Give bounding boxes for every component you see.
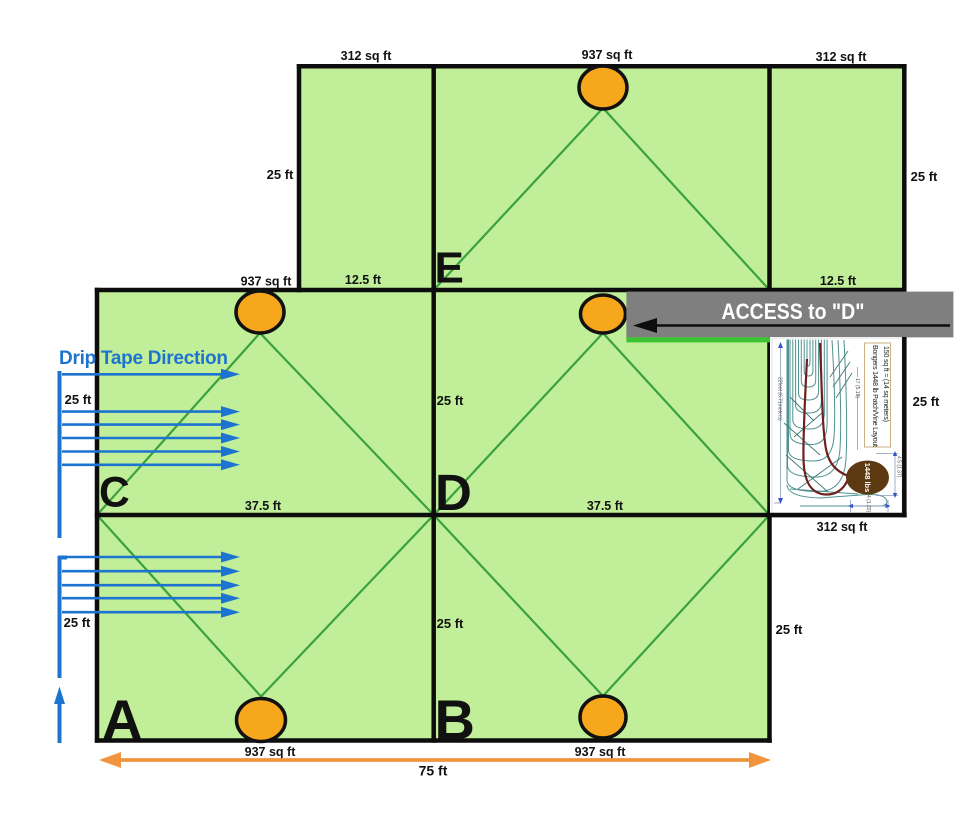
- svg-text:25 ft: 25 ft: [267, 167, 294, 182]
- svg-text:150 sq ft = (14 sq meters): 150 sq ft = (14 sq meters): [882, 346, 889, 422]
- svg-text:937 sq ft: 937 sq ft: [241, 275, 293, 289]
- svg-text:25 ft: 25 ft: [64, 615, 91, 630]
- svg-text:25 ft: 25 ft: [65, 392, 92, 407]
- svg-text:A: A: [102, 688, 142, 751]
- svg-text:1448 lbs: 1448 lbs: [863, 463, 872, 493]
- svg-text:Drip Tape Direction: Drip Tape Direction: [59, 348, 228, 369]
- svg-text:C: C: [99, 470, 130, 517]
- svg-text:312 sq ft: 312 sq ft: [341, 49, 393, 63]
- svg-text:25 ft: 25 ft: [913, 394, 940, 409]
- svg-text:22feet (6.71meters): 22feet (6.71meters): [777, 377, 783, 421]
- svg-text:12.5 ft: 12.5 ft: [345, 273, 382, 287]
- svg-text:937 sq ft: 937 sq ft: [575, 745, 627, 759]
- svg-text:937 sq ft: 937 sq ft: [582, 48, 634, 62]
- svg-text:312 sq ft: 312 sq ft: [817, 520, 869, 534]
- svg-text:25 ft: 25 ft: [437, 616, 464, 631]
- svg-text:937 sq ft: 937 sq ft: [245, 745, 297, 759]
- svg-text:312 sq ft: 312 sq ft: [816, 50, 868, 64]
- svg-text:25 ft: 25 ft: [911, 169, 938, 184]
- svg-text:B: B: [435, 688, 475, 751]
- svg-text:25 ft: 25 ft: [776, 622, 803, 637]
- svg-text:4.5 (1.37): 4.5 (1.37): [896, 456, 902, 478]
- svg-text:12.5 ft: 12.5 ft: [820, 274, 857, 288]
- svg-text:37.5 ft: 37.5 ft: [587, 499, 624, 513]
- svg-text:75 ft: 75 ft: [419, 763, 448, 779]
- svg-text:E: E: [435, 244, 464, 293]
- svg-text:37.5 ft: 37.5 ft: [245, 499, 282, 513]
- svg-text:Bongers 1448 lb Patch/Vine Lay: Bongers 1448 lb Patch/Vine Layout: [871, 345, 878, 447]
- svg-text:4 (1.22): 4 (1.22): [865, 495, 871, 513]
- svg-text:17 (5.18): 17 (5.18): [854, 378, 860, 398]
- svg-text:25 ft: 25 ft: [437, 393, 464, 408]
- svg-text:D: D: [435, 464, 472, 521]
- svg-text:ACCESS to "D": ACCESS to "D": [722, 299, 865, 324]
